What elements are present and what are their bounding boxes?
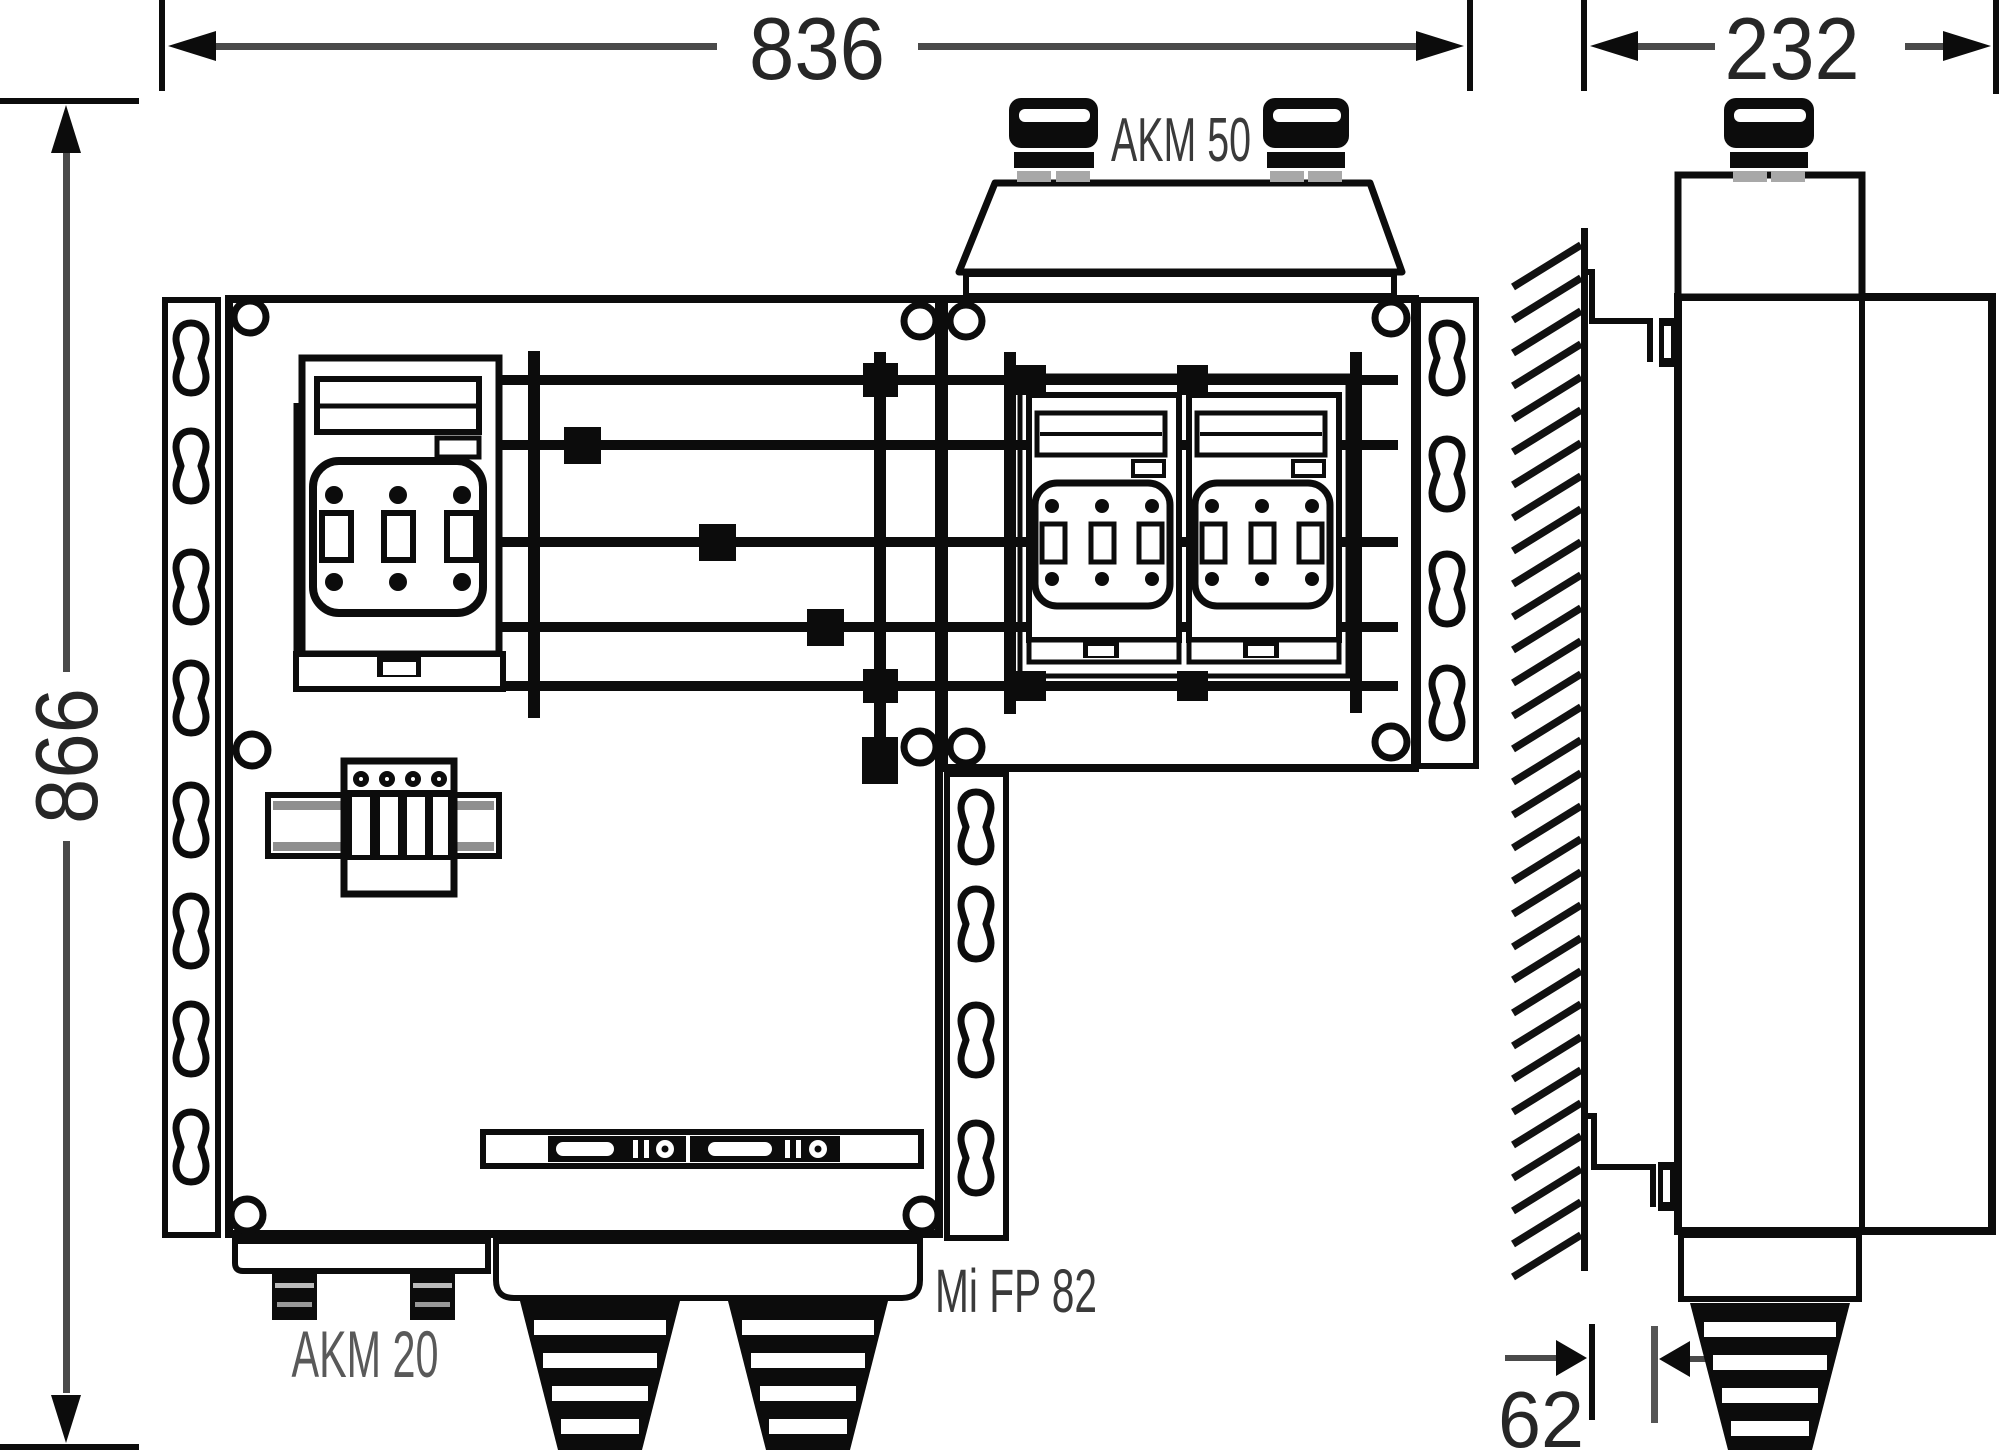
svg-text:62: 62 bbox=[1498, 1375, 1584, 1450]
svg-text:232: 232 bbox=[1725, 0, 1860, 98]
svg-text:866: 866 bbox=[17, 688, 116, 824]
svg-text:AKM 50: AKM 50 bbox=[1111, 106, 1251, 175]
svg-text:836: 836 bbox=[749, 0, 885, 98]
svg-text:AKM 20: AKM 20 bbox=[292, 1317, 439, 1391]
svg-text:Mi FP 82: Mi FP 82 bbox=[935, 1257, 1097, 1325]
